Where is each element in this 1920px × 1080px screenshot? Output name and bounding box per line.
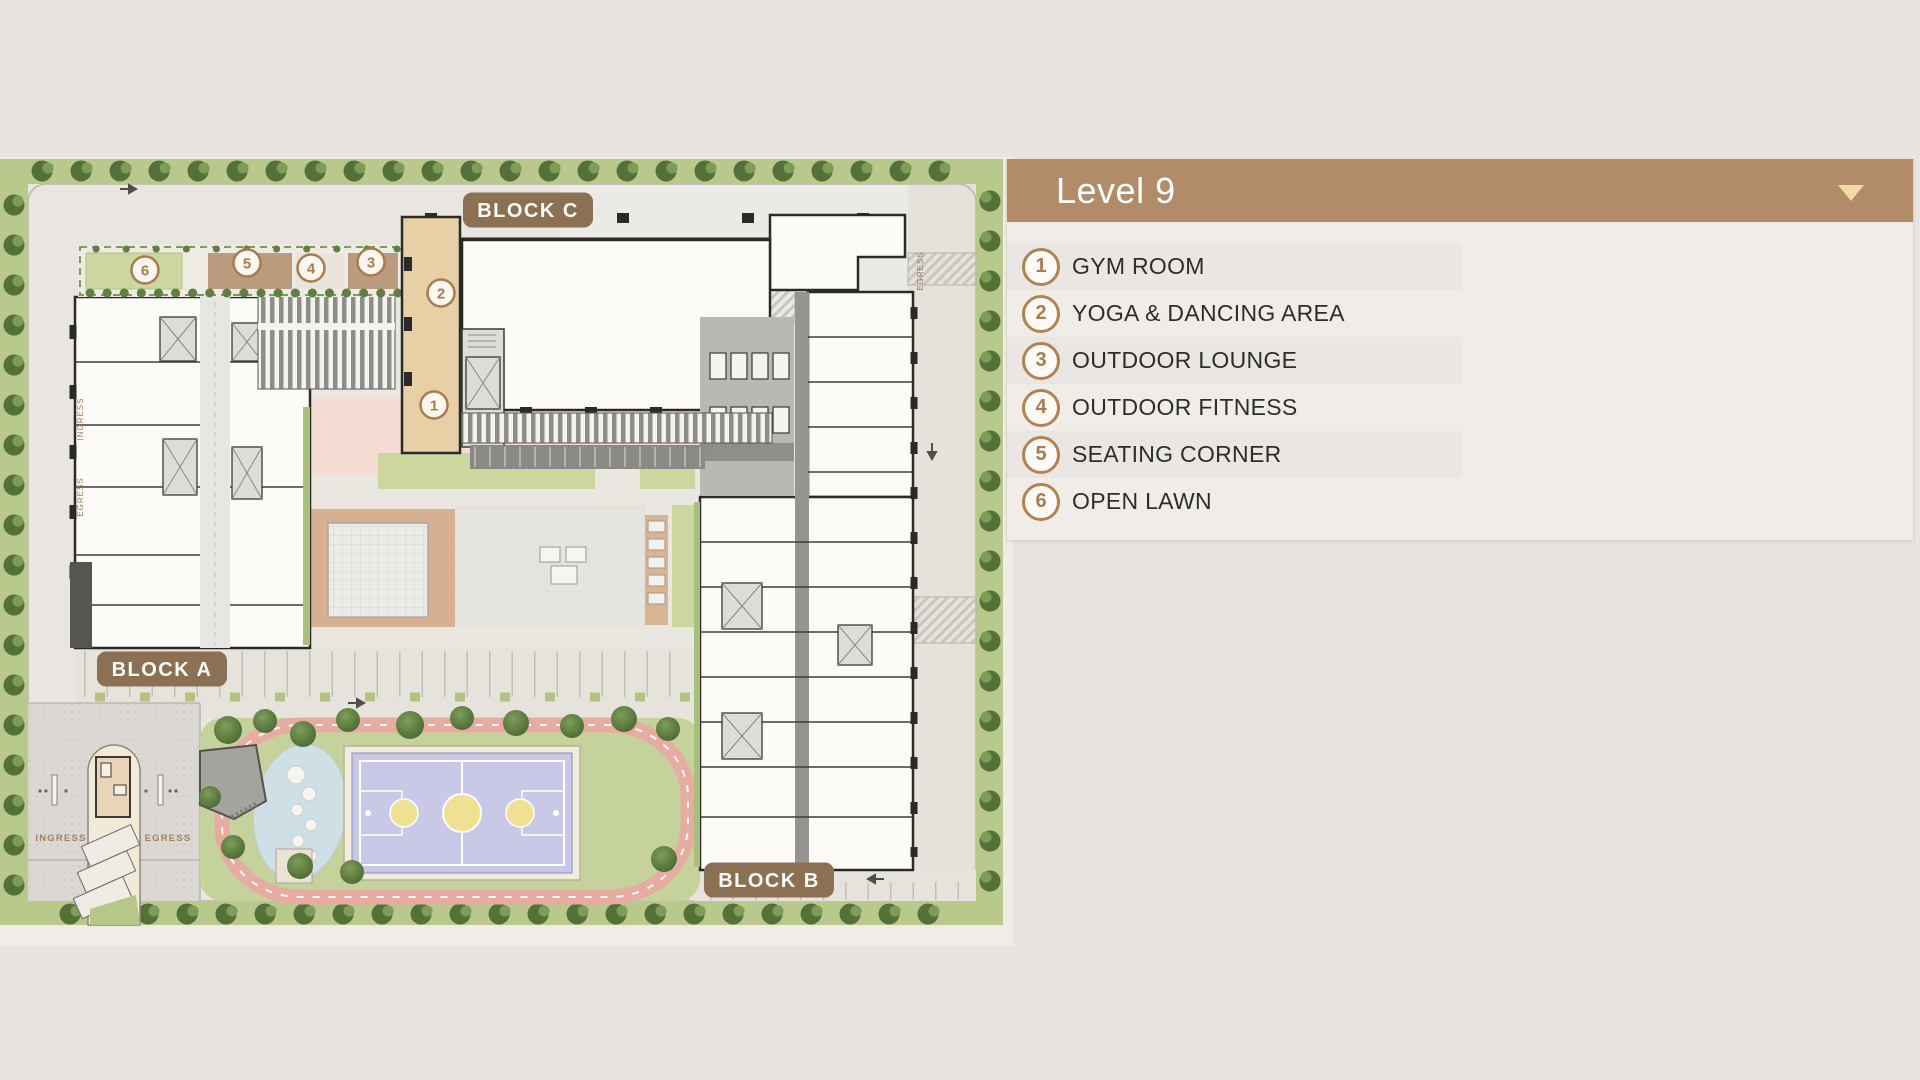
side-ingress-label: INGRESS (76, 397, 85, 440)
plan-marker-4[interactable]: 4 (298, 255, 325, 282)
pergola-band (462, 413, 772, 443)
block-c-label: BLOCK C (463, 193, 593, 228)
level-selector[interactable]: Level 9 (1007, 159, 1913, 222)
site-plan: INGRESS EGRESS (0, 157, 1013, 946)
svg-text:5: 5 (243, 256, 251, 273)
block-a-label: BLOCK A (97, 652, 227, 687)
legend-number-badge: 6 (1022, 483, 1060, 521)
egress-label: EGRESS (145, 833, 192, 844)
legend-number-badge: 1 (1022, 248, 1060, 286)
legend-item-label: YOGA & DANCING AREA (1072, 300, 1345, 327)
svg-text:6: 6 (141, 263, 149, 280)
legend-item-label: SEATING CORNER (1072, 441, 1282, 468)
lift-lobby (700, 317, 794, 495)
site-plan-page: INGRESS EGRESS (0, 0, 1920, 1080)
legend-number-badge: 5 (1022, 436, 1060, 474)
svg-text:BLOCK B: BLOCK B (718, 870, 820, 892)
svg-text:BLOCK A: BLOCK A (112, 659, 213, 681)
crosswalk (908, 597, 976, 643)
basketball-court (344, 746, 580, 880)
svg-text:1: 1 (430, 398, 438, 415)
legend-item-label: OUTDOOR FITNESS (1072, 394, 1298, 421)
legend-item-5[interactable]: 5 SEATING CORNER (1007, 431, 1913, 478)
svg-text:2: 2 (437, 286, 445, 303)
block-b-label: BLOCK B (704, 863, 834, 898)
legend-item-label: GYM ROOM (1072, 253, 1205, 280)
svg-text:BLOCK C: BLOCK C (477, 200, 579, 222)
legend-item-2[interactable]: 2 YOGA & DANCING AREA (1007, 290, 1913, 337)
plan-marker-2[interactable]: 2 (428, 280, 455, 307)
legend-number-badge: 2 (1022, 295, 1060, 333)
ingress-label: INGRESS (35, 833, 86, 844)
legend-item-6[interactable]: 6 OPEN LAWN (1007, 478, 1913, 525)
site-plan-drawing: INGRESS EGRESS (0, 157, 1013, 946)
plan-marker-3[interactable]: 3 (358, 249, 385, 276)
chevron-down-icon[interactable] (1838, 185, 1864, 201)
legend-number-badge: 4 (1022, 389, 1060, 427)
plan-marker-6[interactable]: 6 (132, 257, 159, 284)
plan-marker-5[interactable]: 5 (234, 250, 261, 277)
legend-item-1[interactable]: 1 GYM ROOM (1007, 243, 1913, 290)
legend-list: 1 GYM ROOM 2 YOGA & DANCING AREA 3 OUTDO… (1007, 222, 1913, 525)
legend-item-label: OPEN LAWN (1072, 488, 1212, 515)
legend-panel: Level 9 1 GYM ROOM 2 YOGA & DANCING AREA… (1006, 159, 1914, 541)
side-egress-label: EGRESS (76, 477, 85, 516)
legend-item-label: OUTDOOR LOUNGE (1072, 347, 1297, 374)
legend-item-3[interactable]: 3 OUTDOOR LOUNGE (1007, 337, 1913, 384)
right-egress-label: EGRESS (916, 251, 925, 290)
svg-text:4: 4 (307, 261, 316, 278)
plan-marker-1[interactable]: 1 (421, 392, 448, 419)
legend-number-badge: 3 (1022, 342, 1060, 380)
playground (199, 706, 760, 901)
svg-text:3: 3 (367, 255, 375, 272)
level-title: Level 9 (1056, 170, 1176, 212)
legend-item-4[interactable]: 4 OUTDOOR FITNESS (1007, 384, 1913, 431)
